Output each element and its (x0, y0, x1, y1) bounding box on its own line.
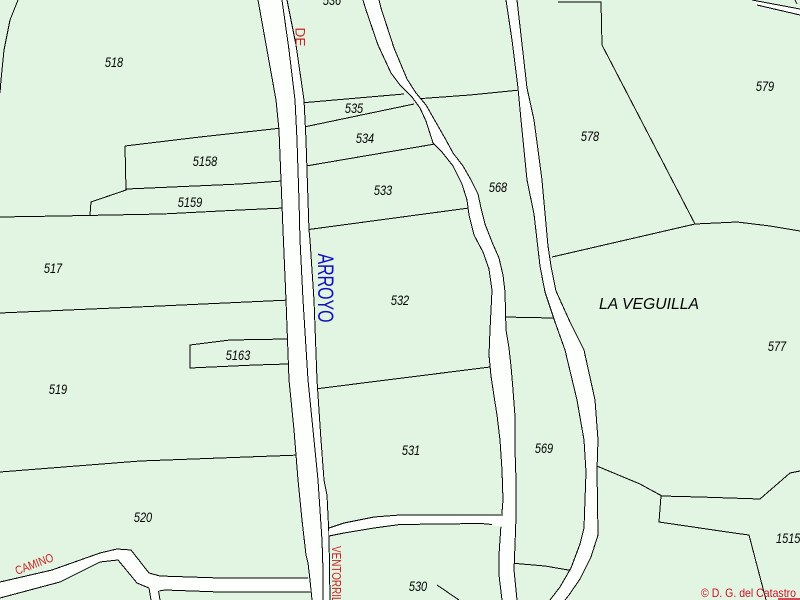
svg-text:ARROYO: ARROYO (313, 254, 338, 323)
svg-text:532: 532 (391, 293, 410, 308)
svg-text:DE: DE (293, 28, 308, 47)
svg-text:520: 520 (134, 510, 153, 525)
svg-text:VENTORRILL: VENTORRILL (329, 546, 343, 600)
svg-text:579: 579 (756, 79, 775, 94)
svg-text:569: 569 (535, 441, 554, 456)
svg-text:536: 536 (323, 0, 342, 8)
svg-text:578: 578 (581, 129, 600, 144)
svg-text:577: 577 (768, 339, 787, 354)
svg-text:518: 518 (105, 55, 124, 70)
svg-text:5159: 5159 (178, 195, 203, 210)
svg-text:517: 517 (44, 261, 63, 276)
svg-text:5163: 5163 (226, 348, 251, 363)
svg-text:535: 535 (345, 101, 364, 116)
svg-text:LA VEGUILLA: LA VEGUILLA (599, 296, 699, 313)
svg-text:15154: 15154 (776, 531, 800, 546)
svg-text:5158: 5158 (193, 154, 218, 169)
svg-text:534: 534 (356, 131, 374, 146)
svg-text:568: 568 (489, 180, 508, 195)
svg-text:519: 519 (49, 382, 68, 397)
svg-text:531: 531 (402, 443, 420, 458)
svg-text:530: 530 (409, 579, 428, 594)
svg-text:© D. G. del Catastro: © D. G. del Catastro (701, 586, 796, 600)
svg-text:533: 533 (374, 183, 393, 198)
